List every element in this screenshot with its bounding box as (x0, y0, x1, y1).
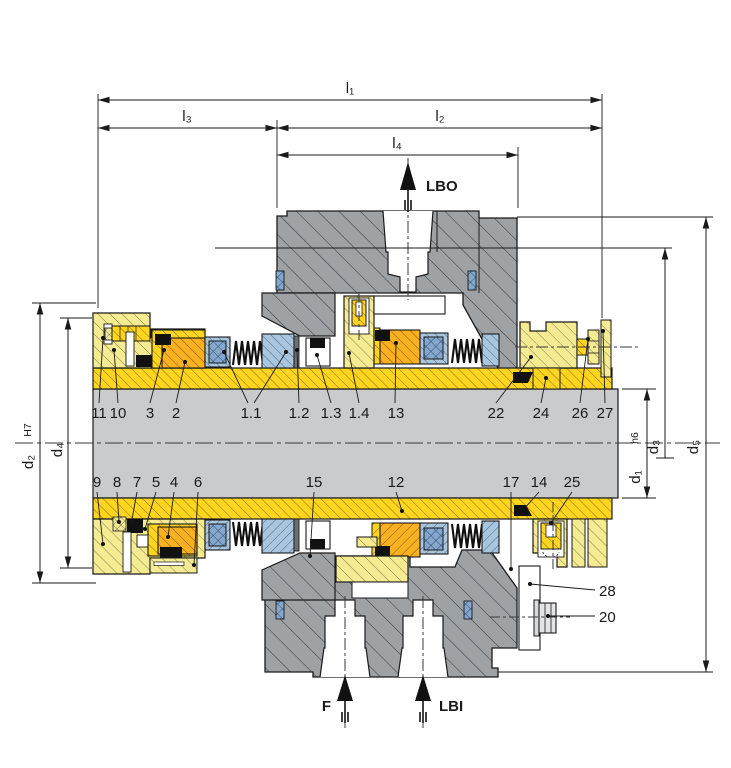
part-label-26: 26 (572, 405, 589, 422)
label-f: F (322, 698, 331, 715)
part-label-11: 11 (91, 405, 107, 422)
part-label-9: 9 (93, 474, 101, 491)
part-label-17: 17 (503, 474, 520, 491)
part-label-24: 24 (533, 405, 550, 422)
part-label-8: 8 (113, 474, 121, 491)
part-label-27: 27 (597, 405, 614, 422)
part-label-1-2: 1.2 (289, 405, 310, 422)
label-lbi: LBI (439, 698, 463, 715)
drive-collar-lower (93, 517, 205, 574)
flange-22 (520, 322, 577, 368)
label-lbo: LBO (426, 178, 458, 195)
part-label-6: 6 (194, 474, 202, 491)
part-label-20: 20 (599, 609, 616, 626)
part-label-1-3: 1.3 (321, 405, 342, 422)
dim-l4: l₄ (392, 135, 401, 152)
dim-l1: l₁ (346, 80, 354, 97)
part-label-3: 3 (146, 405, 154, 422)
dim-d2: d₂ (20, 455, 37, 469)
hex-bolt-20 (539, 603, 556, 633)
part-label-15: 15 (306, 474, 323, 491)
retainer-tab-lower (357, 537, 377, 547)
oring-housing-top-right (468, 271, 476, 290)
dim-d5: d₅ (685, 440, 702, 454)
technical-drawing-page: l₁ l₃ l₂ l₄ d₂ H7 d₄ d₁ h6 d₃ d₅ LBO F L… (0, 0, 731, 768)
part-label-10: 10 (110, 405, 127, 422)
part-label-28: 28 (599, 583, 616, 600)
dim-d4: d₄ (49, 443, 66, 457)
dim-l2: l₂ (435, 108, 444, 125)
part-label-12: 12 (388, 474, 405, 491)
oring-housing-top-left (276, 271, 284, 290)
part-label-5: 5 (152, 474, 160, 491)
part-label-13: 13 (388, 405, 405, 422)
part-label-1-1: 1.1 (241, 405, 262, 422)
part-label-4: 4 (170, 474, 178, 491)
dim-d1: d₁ (627, 470, 644, 483)
end-ring-27 (601, 320, 611, 377)
dim-l3: l₃ (182, 108, 191, 125)
seal-wedge-upper (136, 355, 152, 367)
dim-d2-tol: H7 (22, 423, 34, 437)
part-label-2: 2 (172, 405, 180, 422)
gasket-square-lower (113, 517, 126, 531)
dim-d1-tol: h6 (629, 432, 641, 444)
dim-d3: d₃ (645, 440, 662, 454)
mechanical-seal-cross-section-drawing: l₁ l₃ l₂ l₄ d₂ H7 d₄ d₁ h6 d₃ d₅ LBO F L… (0, 0, 731, 768)
stationary-ring-carrier-upper (374, 296, 445, 314)
oring-housing-bottom-right (464, 601, 472, 619)
part-label-25: 25 (564, 474, 581, 491)
part-label-22: 22 (488, 405, 505, 422)
oring-housing-bottom-left (276, 601, 284, 619)
part-label-1-4: 1.4 (349, 405, 370, 422)
part-label-14: 14 (531, 474, 548, 491)
part-label-7: 7 (133, 474, 141, 491)
